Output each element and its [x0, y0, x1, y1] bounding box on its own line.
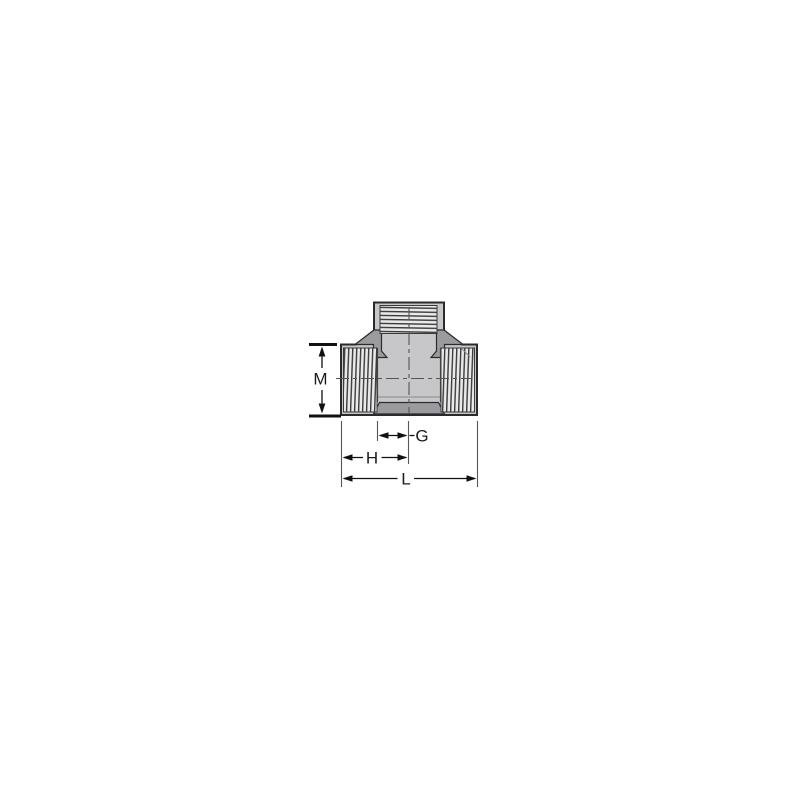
l-arrow-left: [343, 475, 353, 482]
l-arrow-right: [467, 475, 477, 482]
tee-fitting: [336, 303, 477, 416]
dimension-g: G: [379, 427, 429, 446]
h-arrow-left: [343, 454, 353, 461]
dim-label-m: M: [313, 370, 327, 389]
right-socket-threads: [441, 348, 475, 412]
m-arrow-up: [319, 347, 326, 357]
h-arrow-right: [398, 454, 408, 461]
dim-label-h: H: [366, 449, 378, 468]
m-arrow-down: [319, 404, 326, 414]
dim-label-l: L: [401, 470, 410, 489]
technical-drawing: M G H L: [0, 0, 800, 800]
g-arrow-left: [379, 432, 389, 439]
dim-label-g: G: [415, 427, 428, 446]
dimension-h: H: [343, 449, 408, 468]
dimension-m: M: [309, 345, 341, 417]
g-arrow-right: [398, 432, 408, 439]
dimension-l: L: [343, 470, 477, 489]
left-socket-threads: [344, 348, 378, 412]
